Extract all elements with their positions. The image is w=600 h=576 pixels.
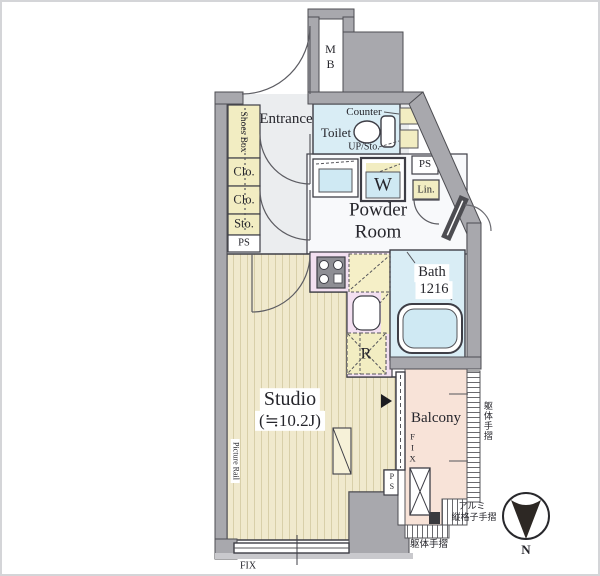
powder-room-label-2: Room (355, 223, 401, 244)
toilet-bowl (354, 121, 380, 143)
toilet-label: Toilet (321, 126, 351, 140)
counter-label: Counter (346, 107, 381, 119)
powder-room-label-1: Powder (349, 201, 407, 222)
toilet-counter-box-2 (400, 130, 418, 148)
closet2-label: Clo. (233, 193, 254, 207)
stove-burner-1 (320, 261, 329, 270)
washer-label: W (374, 176, 392, 197)
wall-under-mb (308, 92, 422, 104)
compass-icon (503, 493, 549, 539)
up-storage-label: UP/Sto. (348, 143, 379, 154)
stove-burner-3 (320, 275, 329, 284)
entrance-label: Entrance (259, 111, 312, 127)
bathtub-inner (403, 309, 457, 348)
stove-burner-2 (334, 261, 343, 270)
ps-bottom-label: PS (387, 472, 396, 492)
meter-box-label: MB (324, 42, 337, 72)
linen-label: Lin. (417, 184, 434, 195)
kitchen-sink (353, 296, 380, 330)
wall-block-top-right (343, 32, 403, 94)
wall-mb-right (343, 17, 354, 34)
storage-label: Sto. (234, 217, 254, 231)
shoes-box-label: Shoes Box (238, 112, 248, 153)
floor-plan-drawing (2, 2, 600, 576)
wall-left (215, 92, 227, 555)
north-label: N (521, 543, 530, 557)
refrigerator-label: R (361, 345, 372, 362)
floor-plan: MB Entrance Shoes Box Clo. Clo. Sto. PS … (0, 0, 600, 576)
balcony-label: Balcony (411, 410, 461, 426)
kitchen-counter (349, 254, 390, 292)
kitchen-counter-side (381, 292, 390, 334)
wall-bottom-right (349, 492, 409, 555)
bath-label: Bath (414, 264, 449, 282)
railing-right (467, 371, 480, 502)
handrail-bottom-label: 躯体手摺 (410, 540, 448, 550)
studio-size-label: (≒10.2J) (255, 411, 325, 431)
handrail-right-label: 躯体手摺 (482, 401, 492, 441)
fix-balcony-label: FIX (407, 432, 416, 465)
ps-right-label: PS (419, 159, 431, 171)
studio-label: Studio (260, 388, 320, 412)
aluminum-rail-label-2: 縦格子手摺 (451, 513, 496, 523)
front-door-arc (242, 26, 310, 94)
washbasin-bowl (319, 169, 352, 192)
wall-right (467, 223, 481, 369)
aluminum-rail-label-1: アルミ (459, 502, 486, 512)
toilet-tank (381, 116, 395, 147)
picture-rail-label: Picture Rail (231, 439, 240, 483)
wall-top-left (215, 92, 243, 104)
closet1-label: Clo. (233, 165, 254, 179)
wall-sill (215, 553, 413, 559)
bath-size-label: 1216 (416, 281, 453, 299)
wall-bath-bottom (390, 357, 481, 369)
railing-bottom (405, 525, 449, 538)
fix-bottom-label: FIX (240, 562, 256, 573)
ps-left-label: PS (238, 237, 250, 248)
stove-grill (334, 274, 342, 283)
